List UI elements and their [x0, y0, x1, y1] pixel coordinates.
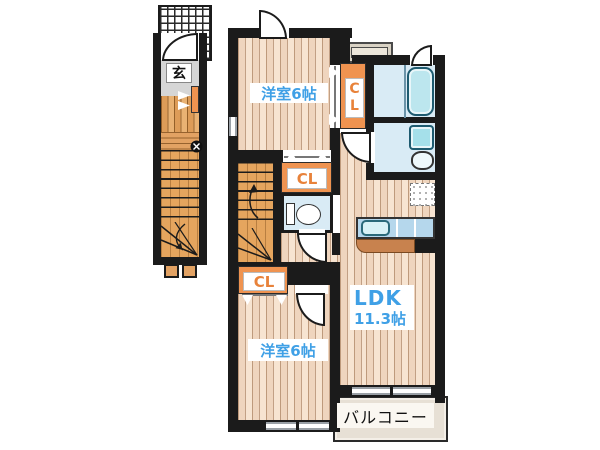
balcony-label: バルコニー [343, 404, 428, 428]
wash-basin [411, 151, 434, 170]
genkan-label-box: 玄 [166, 63, 192, 83]
ldk-window [352, 387, 390, 395]
stair-direction-arrow-icon [244, 184, 264, 220]
wall [228, 150, 283, 162]
kitchen-partition [414, 239, 435, 253]
room-ldk [366, 180, 435, 385]
bath-divider [404, 65, 406, 118]
bathtub [407, 67, 434, 116]
kitchen-counter-line [414, 219, 416, 237]
bedroom-bottom-label-box: 洋室6帖 [248, 339, 328, 361]
wall [228, 28, 238, 432]
wall [366, 172, 435, 180]
bedroom-bottom-window [299, 422, 329, 430]
bedroom-top-door-arc [259, 10, 287, 39]
closet-mid: CL [281, 162, 332, 193]
balcony-label-box: バルコニー [337, 403, 434, 428]
staircase-2f-winder [238, 228, 273, 262]
stair-stub [164, 264, 179, 278]
bedroom-bottom-label: 洋室6帖 [260, 340, 315, 361]
toilet-tank [286, 203, 295, 225]
bedroom-top-label: 洋室6帖 [261, 83, 316, 104]
shoe-cabinet [191, 86, 199, 113]
kitchen-counter-base [356, 239, 415, 253]
ldk-label-box: LDK 11.3帖 [350, 285, 414, 330]
stair-stub [182, 264, 197, 278]
wall [370, 117, 435, 123]
wall [340, 28, 350, 66]
closet-bottom-label: CL [254, 273, 275, 291]
floor-plan: 玄 [0, 0, 600, 450]
kitchen-sink [361, 220, 390, 236]
kitchen-counter-line [396, 219, 398, 237]
ldk-window [393, 387, 431, 395]
bath-door-arc [411, 45, 432, 66]
refrigerator-space [410, 183, 435, 206]
bedroom-bottom-window [266, 422, 296, 430]
bedroom-top-label-box: 洋室6帖 [250, 83, 328, 103]
wall [332, 233, 340, 255]
stair-end-icon [190, 140, 203, 153]
wall [331, 150, 340, 162]
wall [273, 162, 281, 266]
closet-bottom: CL [238, 266, 288, 294]
room-ldk-hall-strip [340, 133, 366, 385]
closet-top-label: CL [347, 81, 363, 115]
wall [287, 262, 340, 285]
toilet-bowl [296, 204, 321, 225]
closet-top: CL [340, 63, 366, 129]
genkan-label: 玄 [172, 63, 186, 83]
washing-machine [409, 125, 434, 150]
wall [435, 55, 445, 403]
ldk-name: LDK [354, 287, 402, 310]
wall [330, 28, 340, 65]
wall [332, 162, 340, 195]
closet-mid-label: CL [297, 170, 318, 188]
ldk-size: 11.3帖 [354, 310, 406, 328]
bedroom-top-window [229, 117, 237, 136]
